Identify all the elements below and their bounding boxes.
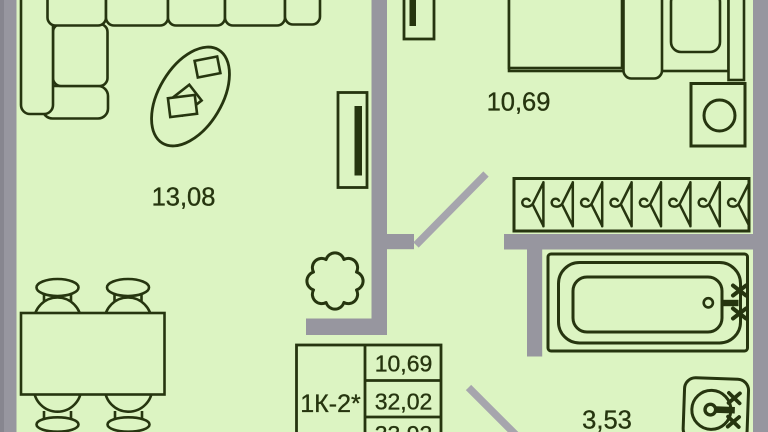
svg-text:3,53: 3,53 bbox=[582, 407, 632, 432]
svg-text:13,08: 13,08 bbox=[152, 184, 216, 212]
svg-text:10,69: 10,69 bbox=[487, 89, 551, 117]
svg-text:10,69: 10,69 bbox=[375, 351, 433, 377]
svg-text:32,02: 32,02 bbox=[375, 389, 433, 415]
svg-text:1К-2*: 1К-2* bbox=[300, 390, 361, 418]
svg-text:33,92: 33,92 bbox=[375, 421, 433, 432]
